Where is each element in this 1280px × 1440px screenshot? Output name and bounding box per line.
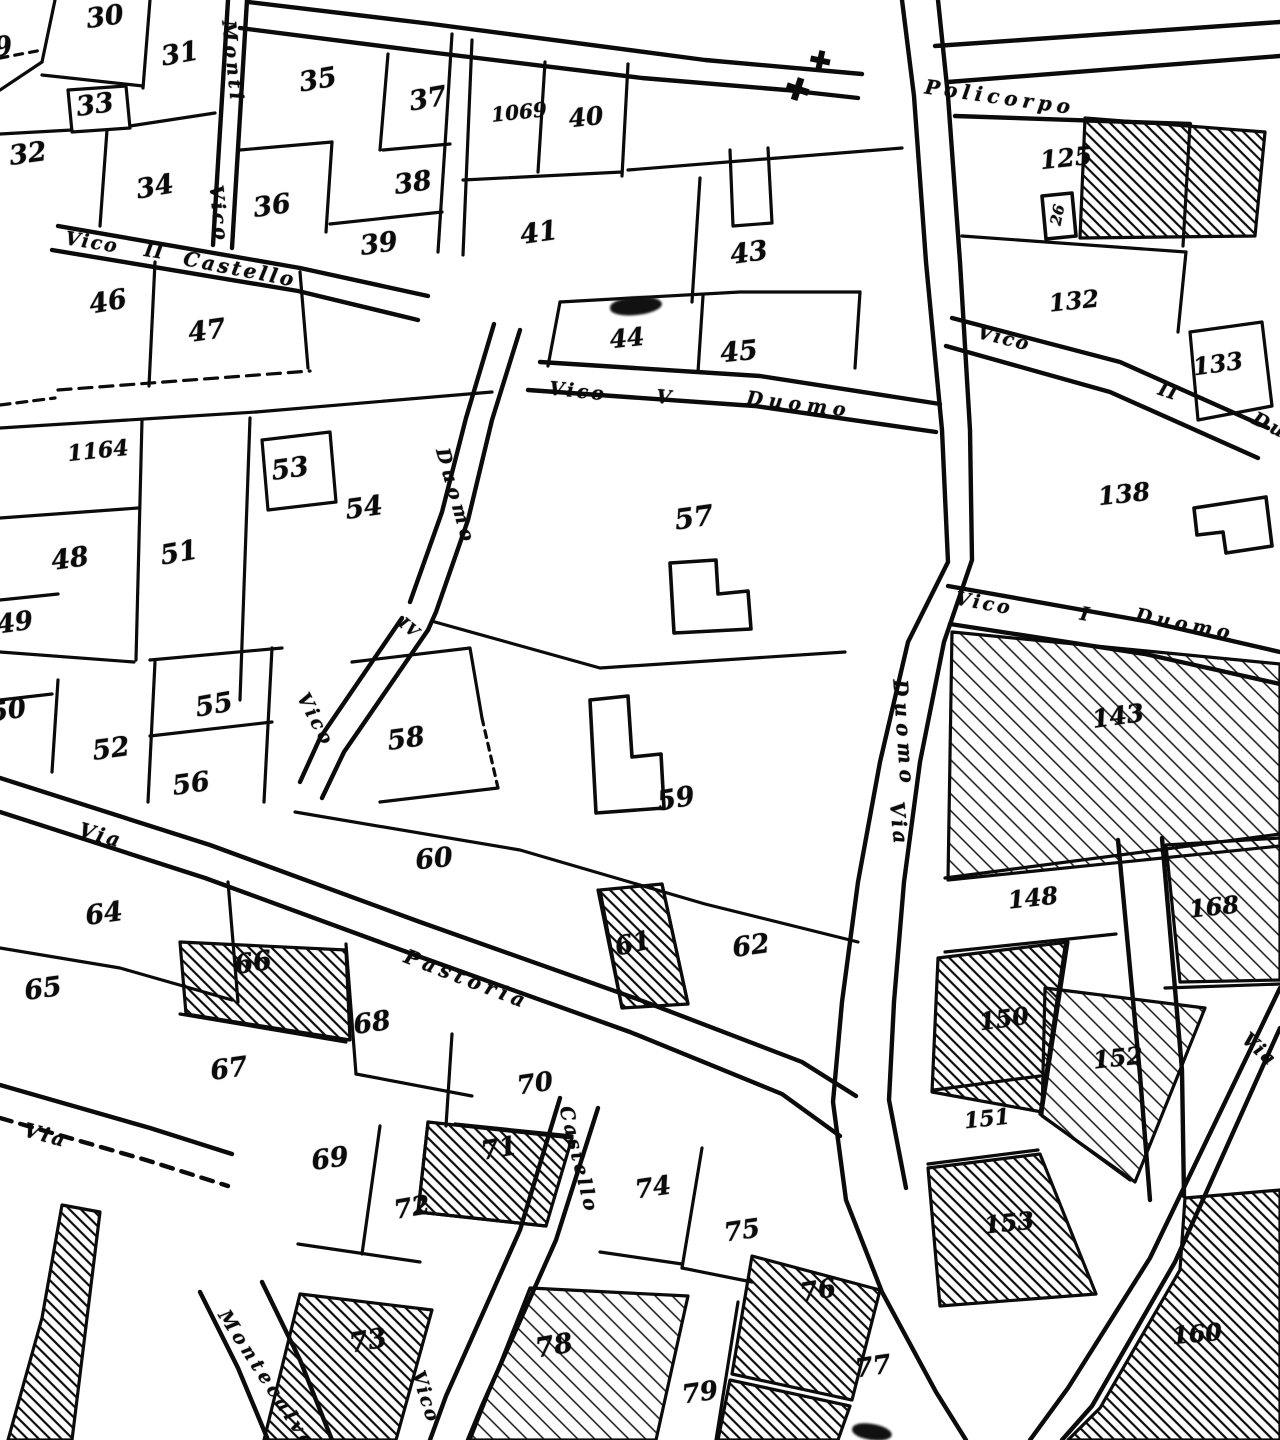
parcel-number: 76 [798,1275,838,1307]
parcel-number: 35 [297,63,339,96]
parcel-number: 133 [1192,349,1245,380]
parcel-number: 152 [1092,1043,1144,1072]
parcel-number: 59 [655,782,697,815]
parcel-number: 44 [608,324,645,353]
cadastral-map: 3093133323435373638391069404143444546471… [0,0,1280,1440]
parcel-number: 75 [722,1216,761,1247]
parcel-number: 70 [515,1069,554,1100]
illegible-ink-smudge [851,1421,893,1440]
parcel-number: 1164 [66,437,129,465]
parcel-number: 41 [519,217,560,249]
street-name-label: Via [1238,1030,1280,1071]
street-name-label: Duomo [745,389,852,421]
parcel-number: 46 [87,285,129,318]
street-name-label: Castello [555,1104,600,1215]
parcel-number: 68 [352,1007,393,1039]
parcel-number: 45 [719,337,759,368]
street-name-label: Policorpo [924,77,1077,118]
parcel-number: 77 [853,1352,892,1383]
parcel-number: 60 [414,844,454,875]
parcel-number: 55 [193,688,235,721]
cross-marker-icon: ✚ [807,47,834,77]
parcel-number: 143 [1090,700,1145,732]
parcel-number: 37 [407,82,449,115]
parcel-number: 47 [187,315,228,347]
street-name-label: IV [395,615,422,641]
parcel-number: 50 [0,696,28,727]
parcel-number: 31 [159,37,201,70]
parcel-number: 148 [1007,883,1059,912]
parcel-number: 160 [1171,1320,1223,1348]
street-name-label: I [1078,605,1091,625]
street-name-label: Monti [218,19,246,104]
illegible-ink-smudge [609,294,663,317]
parcel-number: 79 [680,1378,719,1409]
parcel-number: 43 [729,237,770,269]
street-name-label: Duomo [1249,410,1280,467]
parcel-number: 38 [393,167,434,199]
parcel-number: 51 [158,536,200,569]
street-name-label: Castello [182,248,298,290]
street-name-label: Vico [293,690,337,750]
parcel-number: 33 [75,89,116,121]
street-name-label: V [655,388,673,409]
parcel-number: 49 [0,608,35,639]
street-name-label: Vico [976,323,1033,354]
parcel-number: 57 [673,501,715,534]
parcel-number: 53 [270,453,311,485]
street-name-label: Duomo [1134,606,1237,644]
street-name-label: Via [887,801,912,848]
parcel-number: 132 [1048,286,1100,315]
street-name-label: Via [77,819,126,851]
parcel-number: 125 [1039,143,1094,173]
street-name-label: Vico [954,590,1014,619]
parcel-number: 64 [84,898,125,930]
parcel-number: 36 [252,190,293,222]
parcel-number: 153 [983,1208,1035,1237]
parcel-number: 1069 [490,99,547,125]
parcel-number: 58 [386,723,427,755]
parcel-number: 67 [209,1053,250,1085]
street-name-label: Duomo [432,446,478,548]
street-name-label: Vico [408,1368,443,1425]
parcel-number: 78 [533,1329,575,1362]
parcel-number: 32 [8,138,49,170]
street-name-label: Duomo [890,679,918,790]
parcel-number: 74 [633,1173,672,1204]
parcel-number: 71 [479,1133,519,1165]
parcel-number: 61 [613,928,654,961]
parcel-number: 40 [567,103,604,132]
street-name-label: Vico [548,380,608,405]
parcel-number: 66 [233,947,274,979]
street-name-label: Via [22,1120,70,1151]
street-name-label: Vico [64,229,120,256]
parcel-number: 65 [23,973,64,1005]
street-name-label: Vico [206,184,231,244]
cross-marker-icon: ✚ [780,73,813,109]
parcel-number: 34 [134,170,176,203]
parcel-number: 54 [344,492,385,524]
parcel-number: 72 [392,1192,432,1224]
map-labels: 3093133323435373638391069404143444546471… [0,0,1280,1440]
parcel-number: 9 [0,32,14,61]
parcel-number: 73 [347,1324,389,1357]
parcel-number: 69 [310,1143,351,1175]
parcel-number: 168 [1188,892,1240,921]
parcel-number: 62 [731,930,772,962]
parcel-number: 56 [171,768,212,800]
parcel-number: 26 [1048,203,1067,227]
parcel-number: 151 [963,1106,1011,1133]
parcel-number: 52 [91,733,132,765]
parcel-number: 150 [978,1004,1031,1035]
street-name-label: II [1156,380,1181,404]
parcel-number: 39 [359,228,400,260]
parcel-number: 48 [50,543,91,575]
parcel-number: 138 [1097,479,1152,509]
street-name-label: Pastoria [402,946,533,1012]
street-name-label: Montecalvario [214,1307,341,1440]
street-name-label: II [143,241,166,263]
parcel-number: 30 [85,1,126,33]
